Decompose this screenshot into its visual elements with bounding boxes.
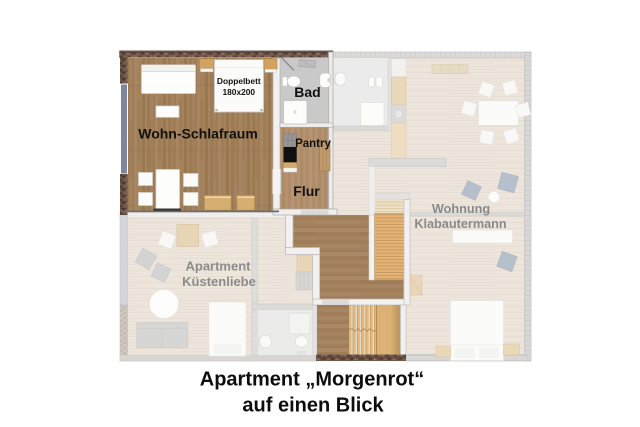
svg-text:Wohnung: Wohnung bbox=[432, 202, 490, 216]
svg-text:180x200: 180x200 bbox=[222, 87, 255, 97]
svg-text:Flur: Flur bbox=[293, 183, 320, 199]
svg-text:Bad: Bad bbox=[294, 84, 320, 100]
svg-text:Apartment „Morgenrot“: Apartment „Morgenrot“ bbox=[200, 369, 424, 391]
svg-text:auf einen Blick: auf einen Blick bbox=[242, 395, 384, 417]
svg-text:Klabautermann: Klabautermann bbox=[414, 217, 506, 231]
svg-text:Apartment: Apartment bbox=[185, 259, 251, 274]
svg-text:Doppelbett: Doppelbett bbox=[217, 76, 261, 86]
svg-text:Küstenliebe: Küstenliebe bbox=[182, 274, 256, 289]
svg-text:Wohn-Schlafraum: Wohn-Schlafraum bbox=[138, 126, 258, 142]
svg-text:Pantry: Pantry bbox=[295, 138, 331, 150]
